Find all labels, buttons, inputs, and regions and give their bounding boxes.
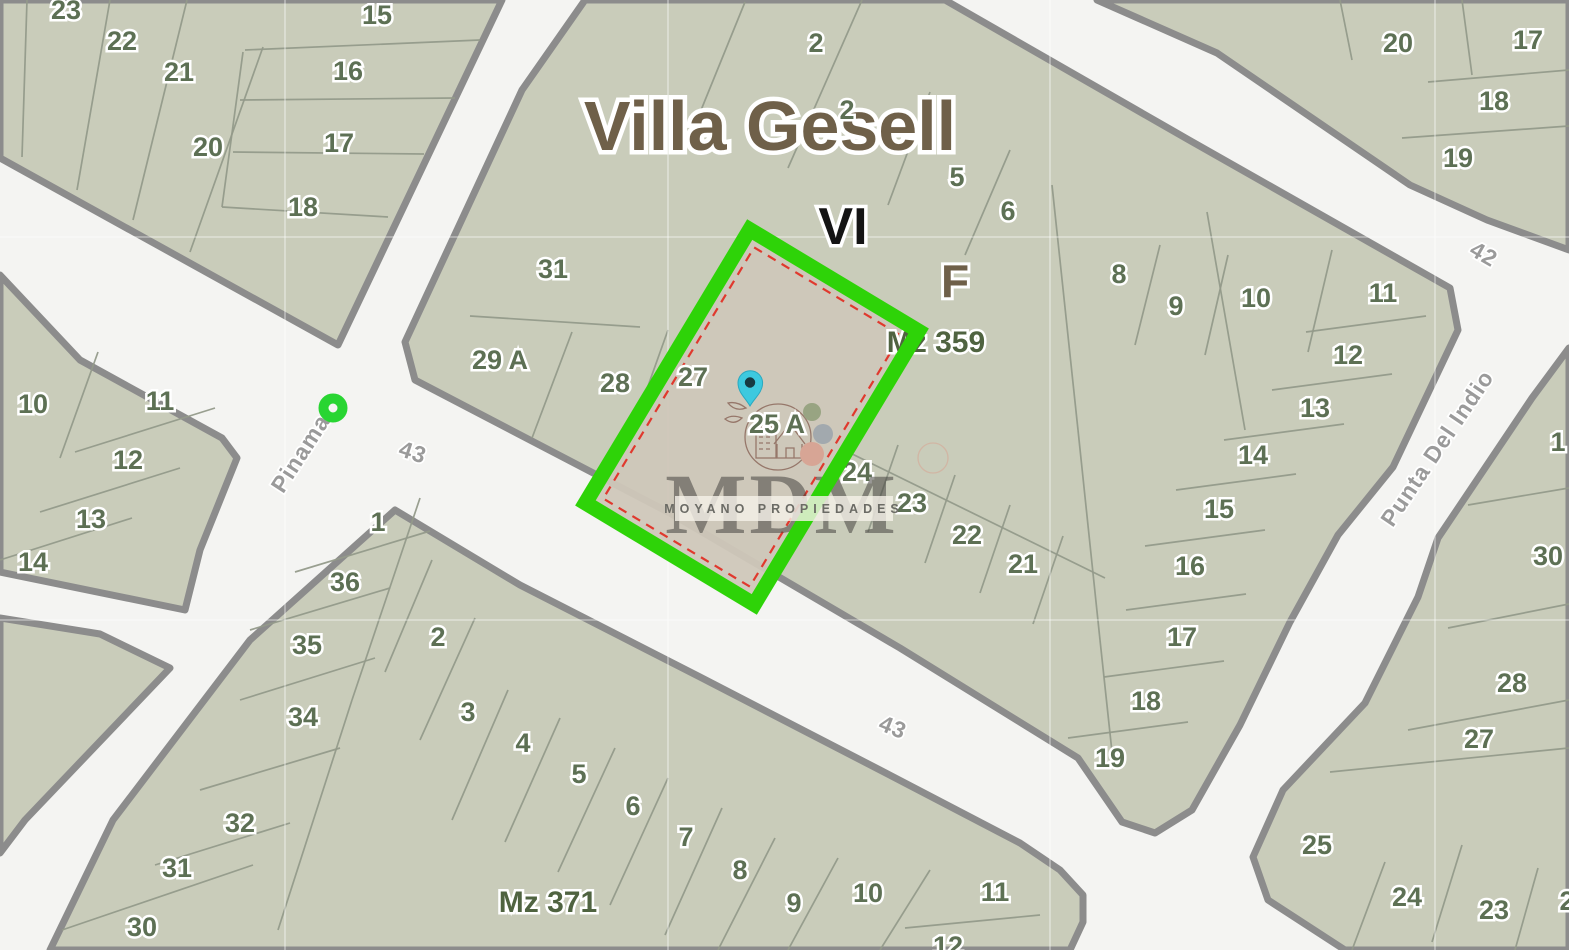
lot-number: 35 <box>292 630 322 660</box>
lot-number: 9 <box>786 888 801 918</box>
lot-number: 2 <box>808 28 823 58</box>
lot-number: 2 <box>839 95 854 125</box>
lot-number: 29 A <box>472 345 528 375</box>
subsection-label: F <box>941 255 969 307</box>
street-name-label: 42 <box>1466 236 1503 272</box>
lot-number: 24 <box>1392 882 1422 912</box>
lot-number: 23 <box>51 0 81 25</box>
lot-number: 18 <box>288 192 318 222</box>
lot-number: 25 A <box>749 409 805 439</box>
lot-number: 10 <box>853 878 883 908</box>
lot-number: 18 <box>1479 86 1509 116</box>
lot-number: 19 <box>1443 143 1473 173</box>
street-name-label: 43 <box>875 710 910 744</box>
lot-number: 36 <box>330 567 360 597</box>
lot-number: 22 <box>107 26 137 56</box>
section-label: VI <box>818 198 867 256</box>
lot-number: 11 <box>981 877 1010 907</box>
lot-number: 11 <box>146 386 175 416</box>
lot-number: 28 <box>1497 668 1527 698</box>
lot-number: 22 <box>952 520 982 550</box>
lot-number: 5 <box>571 759 586 789</box>
map-pin-center-dot <box>745 377 755 387</box>
lot-number: 12 <box>933 931 963 950</box>
lot-number: 19 <box>1095 743 1125 773</box>
lot-number: 14 <box>1238 440 1268 470</box>
lot-number: 15 <box>1204 494 1234 524</box>
city-title: Villa Gesell <box>584 87 956 165</box>
street-corner-marker[interactable] <box>324 399 343 418</box>
lot-number: 34 <box>288 702 318 732</box>
lot-number: 9 <box>1168 291 1183 321</box>
lot-number: 13 <box>1300 393 1330 423</box>
lot-number: 12 <box>1333 340 1363 370</box>
street-name-label: 43 <box>396 435 430 468</box>
lot-number: 32 <box>225 808 255 838</box>
lot-number: 10 <box>18 389 48 419</box>
lot-number: 12 <box>113 445 143 475</box>
lot-number: 31 <box>162 853 192 883</box>
lot-number: 6 <box>1000 196 1015 226</box>
map-viewport[interactable]: Villa Gesell VI F Mz 359 Mz 371 23222120… <box>0 0 1569 950</box>
lot-number: 14 <box>18 547 48 577</box>
lot-number: 30 <box>127 912 157 942</box>
lot-number: 1 <box>370 507 385 537</box>
watermark-band: MOYANO PROPIEDADES <box>664 496 904 521</box>
lot-number: 11 <box>1369 278 1398 308</box>
lot-number: 17 <box>1513 25 1543 55</box>
lot-number: 1 <box>1550 427 1565 457</box>
lot-number: 28 <box>600 368 630 398</box>
lot-number: 18 <box>1131 686 1161 716</box>
lot-number: 23 <box>1479 895 1509 925</box>
lot-number: 20 <box>193 132 223 162</box>
lot-number: 13 <box>76 504 106 534</box>
lot-number: 20 <box>1383 28 1413 58</box>
lot-number: 8 <box>732 855 747 885</box>
lot-number: 3 <box>460 697 475 727</box>
lot-number: 16 <box>333 56 363 86</box>
lot-number: 5 <box>949 162 964 192</box>
lot-number: 21 <box>1008 549 1038 579</box>
lot-number: 17 <box>324 128 354 158</box>
lot-number: 31 <box>538 254 568 284</box>
lot-number: 30 <box>1533 541 1563 571</box>
lot-number: 16 <box>1175 551 1205 581</box>
lot-number: 10 <box>1241 283 1271 313</box>
map-canvas[interactable]: Villa Gesell VI F Mz 359 Mz 371 23222120… <box>0 0 1569 950</box>
lot-number: 2 <box>430 622 445 652</box>
watermark-subtitle: MOYANO PROPIEDADES <box>664 502 904 516</box>
lot-number: 8 <box>1111 259 1126 289</box>
lot-number: 7 <box>678 822 693 852</box>
lot-number: 2 <box>1559 886 1569 916</box>
lot-number: 21 <box>164 57 194 87</box>
manzana-label-371: Mz 371 <box>499 886 597 919</box>
lot-number: 27 <box>1464 724 1494 754</box>
lot-number: 6 <box>625 791 640 821</box>
lot-number: 17 <box>1167 622 1197 652</box>
lot-number: 27 <box>678 362 708 392</box>
lot-number: 25 <box>1302 830 1332 860</box>
lot-number: 15 <box>362 0 392 30</box>
lot-number: 4 <box>515 728 530 758</box>
